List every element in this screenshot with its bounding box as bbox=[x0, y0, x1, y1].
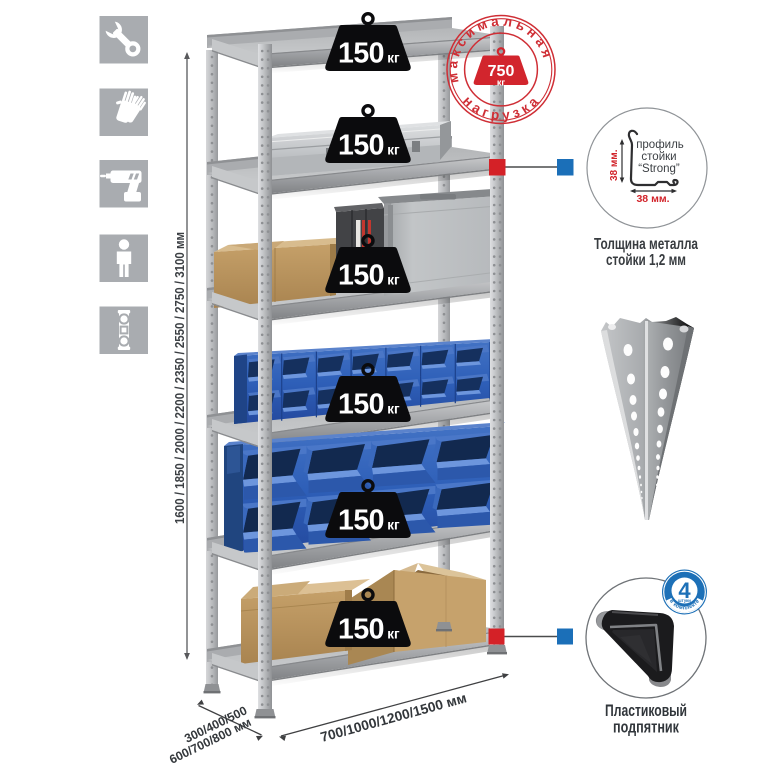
svg-text:стойки: стойки bbox=[641, 151, 676, 163]
svg-text:подпятник: подпятник bbox=[613, 719, 680, 737]
svg-text:700/1000/1200/1500 мм: 700/1000/1200/1500 мм bbox=[319, 690, 468, 745]
svg-text:Пластиковый: Пластиковый bbox=[605, 702, 687, 720]
svg-text:38 мм.: 38 мм. bbox=[636, 193, 669, 205]
svg-text:150: 150 bbox=[338, 260, 384, 292]
svg-text:кг: кг bbox=[387, 627, 400, 642]
svg-text:150: 150 bbox=[338, 130, 384, 162]
svg-text:Толщина металла: Толщина металла bbox=[594, 236, 698, 253]
svg-text:кг: кг bbox=[387, 402, 400, 417]
svg-text:штуки: штуки bbox=[678, 598, 691, 603]
svg-text:150: 150 bbox=[338, 38, 384, 70]
svg-text:профиль: профиль bbox=[636, 139, 684, 151]
svg-text:кг: кг bbox=[387, 518, 400, 533]
svg-text:1600 / 1850 / 2000 / 2200 / 23: 1600 / 1850 / 2000 / 2200 / 2350 / 2550 … bbox=[173, 232, 187, 524]
svg-text:кг: кг bbox=[497, 78, 506, 88]
svg-text:38 мм.: 38 мм. bbox=[609, 149, 620, 181]
svg-text:кг: кг bbox=[387, 273, 400, 288]
svg-text:кг: кг bbox=[387, 143, 400, 158]
svg-text:150: 150 bbox=[338, 505, 384, 537]
svg-text:“Strong”: “Strong” bbox=[638, 163, 680, 175]
svg-text:150: 150 bbox=[338, 389, 384, 421]
svg-text:кг: кг bbox=[387, 51, 400, 66]
svg-text:стойки 1,2 мм: стойки 1,2 мм bbox=[606, 252, 686, 269]
svg-text:150: 150 bbox=[338, 614, 384, 646]
